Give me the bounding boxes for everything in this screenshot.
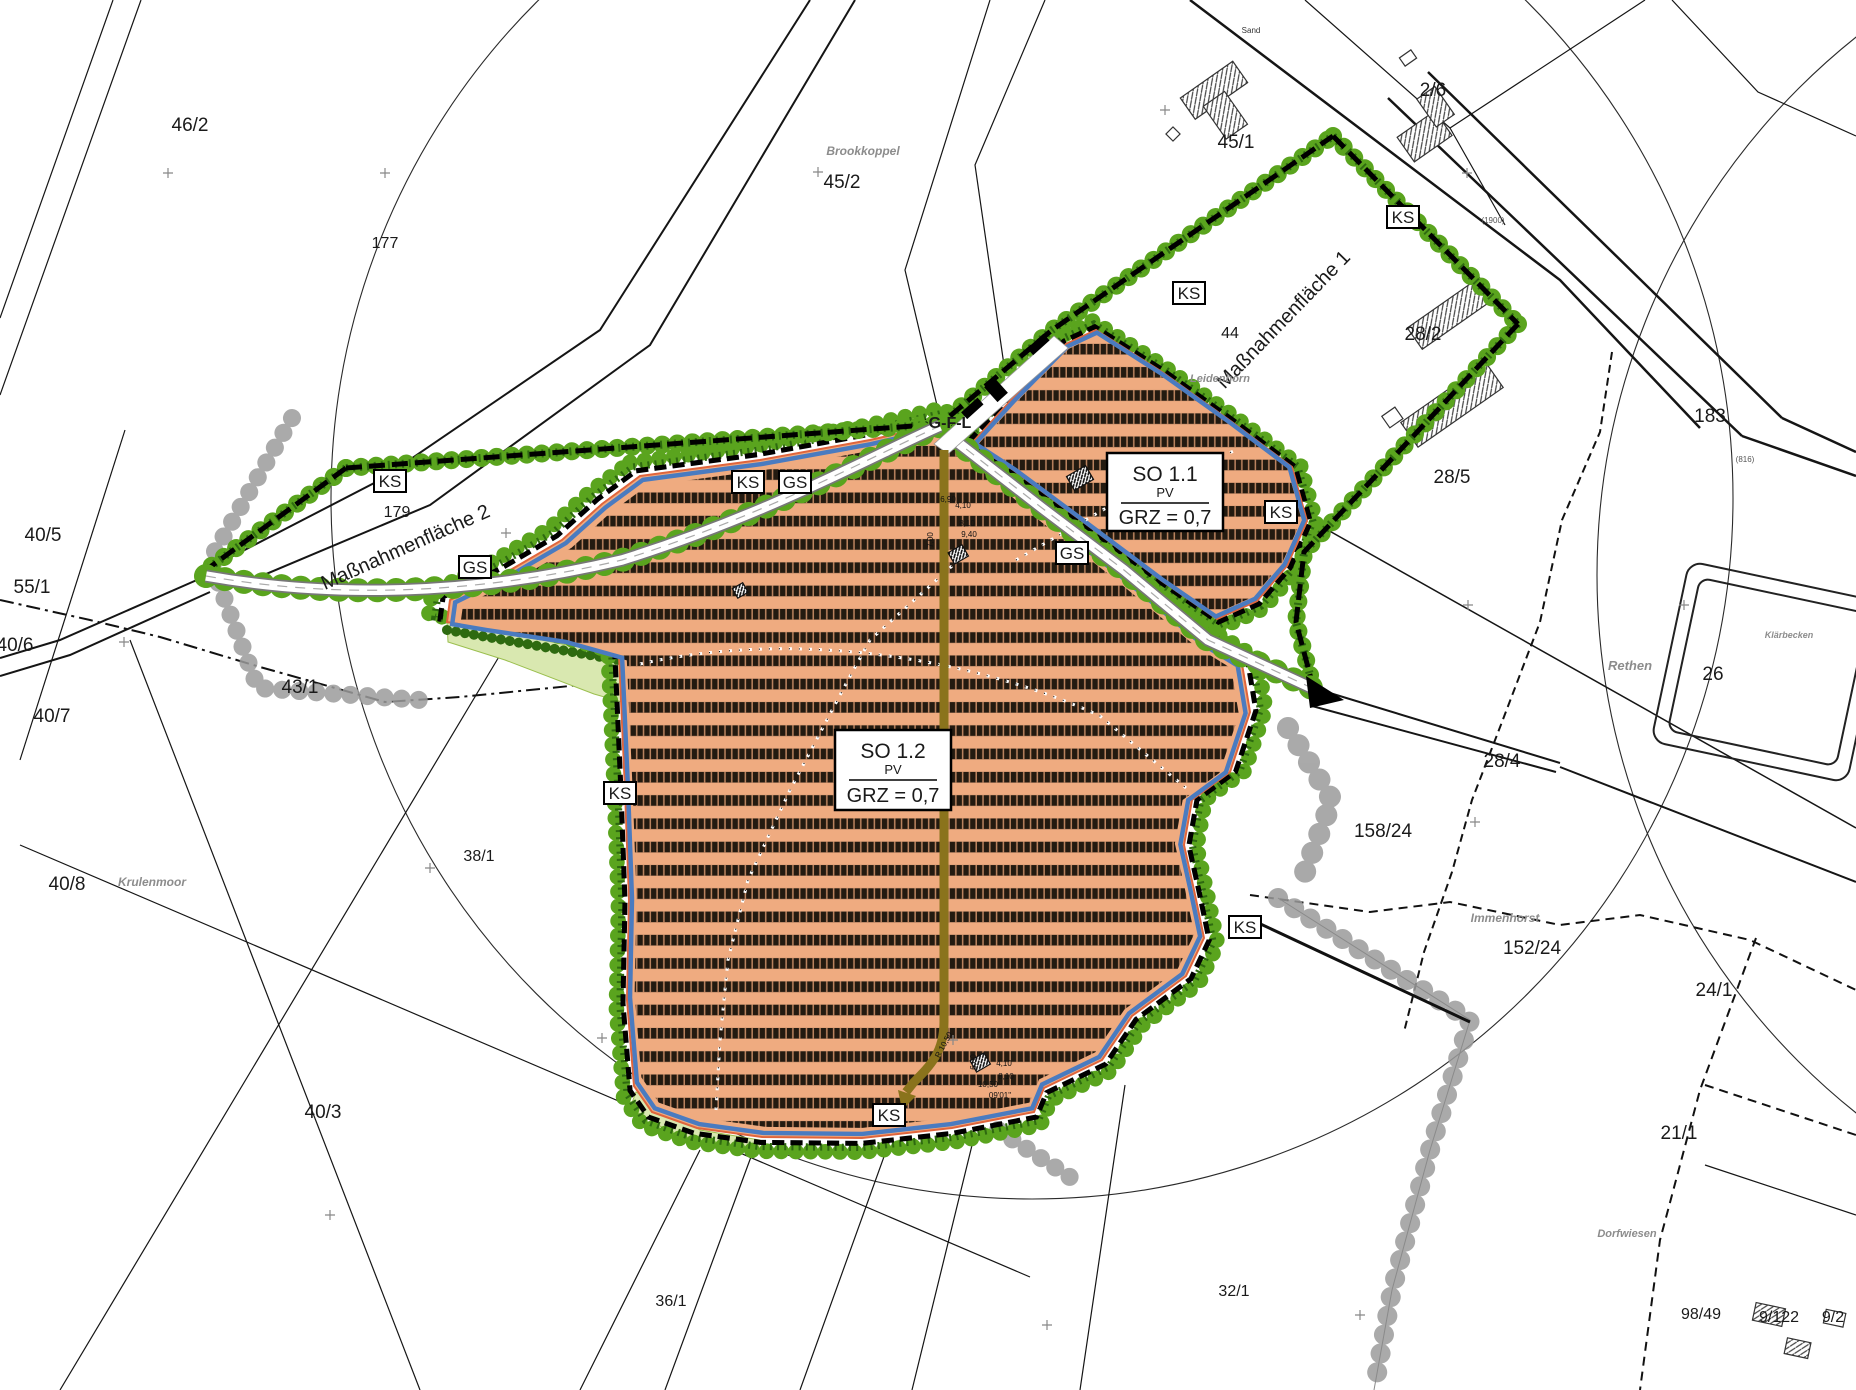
klaerbecken-basin bbox=[1651, 561, 1856, 783]
gs-label: GS bbox=[463, 558, 488, 577]
parcel-label: 158/24 bbox=[1354, 821, 1413, 842]
stream-rethe-line bbox=[1404, 352, 1612, 1032]
dimension: 8,10 bbox=[959, 519, 975, 528]
place-name: Leidenhorn bbox=[1190, 373, 1250, 385]
ks-label: KS bbox=[1234, 918, 1257, 937]
ks-label: KS bbox=[737, 473, 760, 492]
parcel-label: 28/5 bbox=[1434, 467, 1471, 488]
road-exit-arrow bbox=[1306, 676, 1344, 708]
tree-lane-lines bbox=[1278, 898, 1470, 1390]
so12-name: SO 1.2 bbox=[860, 740, 925, 763]
ks-marker: KS bbox=[873, 1104, 905, 1126]
parcel-label: 40/8 bbox=[49, 874, 86, 895]
survey-circle-east bbox=[1597, 0, 1856, 1263]
parcel-label: 24/1 bbox=[1696, 980, 1733, 1001]
dimension: 09'01" bbox=[989, 1091, 1011, 1100]
place-name: Rethen bbox=[1608, 658, 1652, 673]
ks-label: KS bbox=[609, 784, 632, 803]
dimension: 6,90 bbox=[940, 495, 956, 504]
parcel-label: 36/1 bbox=[655, 1293, 686, 1310]
ks-marker: KS bbox=[604, 782, 636, 804]
parcel-label: 2/6 bbox=[1420, 80, 1446, 101]
gs-label: GS bbox=[783, 473, 808, 492]
ks-marker: KS bbox=[1387, 206, 1419, 228]
so11-use-box: SO 1.1 PV GRZ = 0,7 bbox=[1107, 453, 1223, 531]
place-name: Dorfwiesen bbox=[1597, 1228, 1657, 1240]
so11-name: SO 1.1 bbox=[1132, 463, 1197, 486]
dimension: 4,10 bbox=[955, 501, 971, 510]
gs-marker: GS bbox=[459, 556, 491, 578]
gfl-label: G-F-L bbox=[929, 415, 972, 432]
so12-grz: GRZ = 0,7 bbox=[847, 785, 940, 807]
parcel-label: 40/3 bbox=[305, 1102, 342, 1123]
annotation: (816) bbox=[1736, 455, 1755, 464]
parcel-label: 45/1 bbox=[1218, 132, 1255, 153]
ks-label: KS bbox=[1178, 284, 1201, 303]
parcel-label: 177 bbox=[372, 235, 399, 252]
ks-marker: KS bbox=[1229, 916, 1261, 938]
parcel-label: 98/49 bbox=[1681, 1306, 1721, 1323]
so12-use-box: SO 1.2 PV GRZ = 0,7 bbox=[835, 730, 951, 810]
ks-marker: KS bbox=[1173, 282, 1205, 304]
dimension: 9,40 bbox=[961, 530, 977, 539]
ks-marker: KS bbox=[1265, 501, 1297, 523]
ks-label: KS bbox=[878, 1106, 901, 1125]
parcel-label: 32/1 bbox=[1218, 1283, 1249, 1300]
ks-label: KS bbox=[1392, 208, 1415, 227]
parcel-label: 40/5 bbox=[25, 525, 62, 546]
ks-label: KS bbox=[1270, 503, 1293, 522]
place-name: Immenhorst bbox=[1471, 911, 1541, 925]
parcel-label: 43/1 bbox=[282, 677, 319, 698]
parcel-label: 40/7 bbox=[34, 706, 71, 727]
dimension: 4,10 bbox=[996, 1059, 1012, 1068]
annotation: Sand bbox=[1242, 26, 1261, 35]
so11-use: PV bbox=[1156, 485, 1174, 500]
place-name: Brookkoppel bbox=[826, 144, 900, 158]
dimension: 10,50 bbox=[978, 1080, 999, 1089]
ks-marker: KS bbox=[374, 470, 406, 492]
ks-label: KS bbox=[379, 472, 402, 491]
dimension: 8,10 bbox=[998, 1072, 1014, 1081]
ks-marker: KS bbox=[732, 471, 764, 493]
annotation: (1900) bbox=[1481, 216, 1504, 225]
so11-grz: GRZ = 0,7 bbox=[1119, 507, 1212, 529]
zoning-plan-canvas: 46/2 177 Brookkoppel 45/2 45/1 2/6 44 Ma… bbox=[0, 0, 1856, 1390]
parcel-label: 44 bbox=[1221, 325, 1239, 342]
site-plan-map: 46/2 177 Brookkoppel 45/2 45/1 2/6 44 Ma… bbox=[0, 0, 1856, 1390]
parcel-label: 40/6 bbox=[0, 635, 33, 656]
gs-marker: GS bbox=[779, 471, 811, 493]
parcel-label: 183 bbox=[1694, 406, 1726, 427]
parcel-label: 28/2 bbox=[1405, 324, 1442, 345]
place-name: Klärbecken bbox=[1765, 630, 1814, 640]
parcel-label: 46/2 bbox=[172, 115, 209, 136]
parcel-label: 21/1 bbox=[1661, 1123, 1698, 1144]
parcel-label: 9/122 bbox=[1759, 1309, 1799, 1326]
parcel-label: 55/1 bbox=[14, 577, 51, 598]
parcel-label: 38/1 bbox=[463, 848, 494, 865]
buildings-bottom-right bbox=[1747, 1295, 1846, 1365]
gs-label: GS bbox=[1060, 544, 1085, 563]
measure-area-1-label: Maßnahmenfläche 1 bbox=[1212, 247, 1354, 393]
parcel-label: 152/24 bbox=[1503, 938, 1562, 959]
place-name: Krulenmoor bbox=[118, 875, 187, 889]
parcel-label: 9/2 bbox=[1822, 1309, 1844, 1326]
dimension: 7,00 bbox=[926, 532, 935, 548]
parcel-label: 179 bbox=[384, 504, 411, 521]
so12-use: PV bbox=[884, 762, 902, 777]
parcel-label: 45/2 bbox=[824, 172, 861, 193]
parcel-label: 28/4 bbox=[1484, 751, 1521, 772]
dimension: 6,00 bbox=[969, 1054, 978, 1070]
gs-marker: GS bbox=[1056, 542, 1088, 564]
parcel-label: 26 bbox=[1702, 664, 1723, 685]
